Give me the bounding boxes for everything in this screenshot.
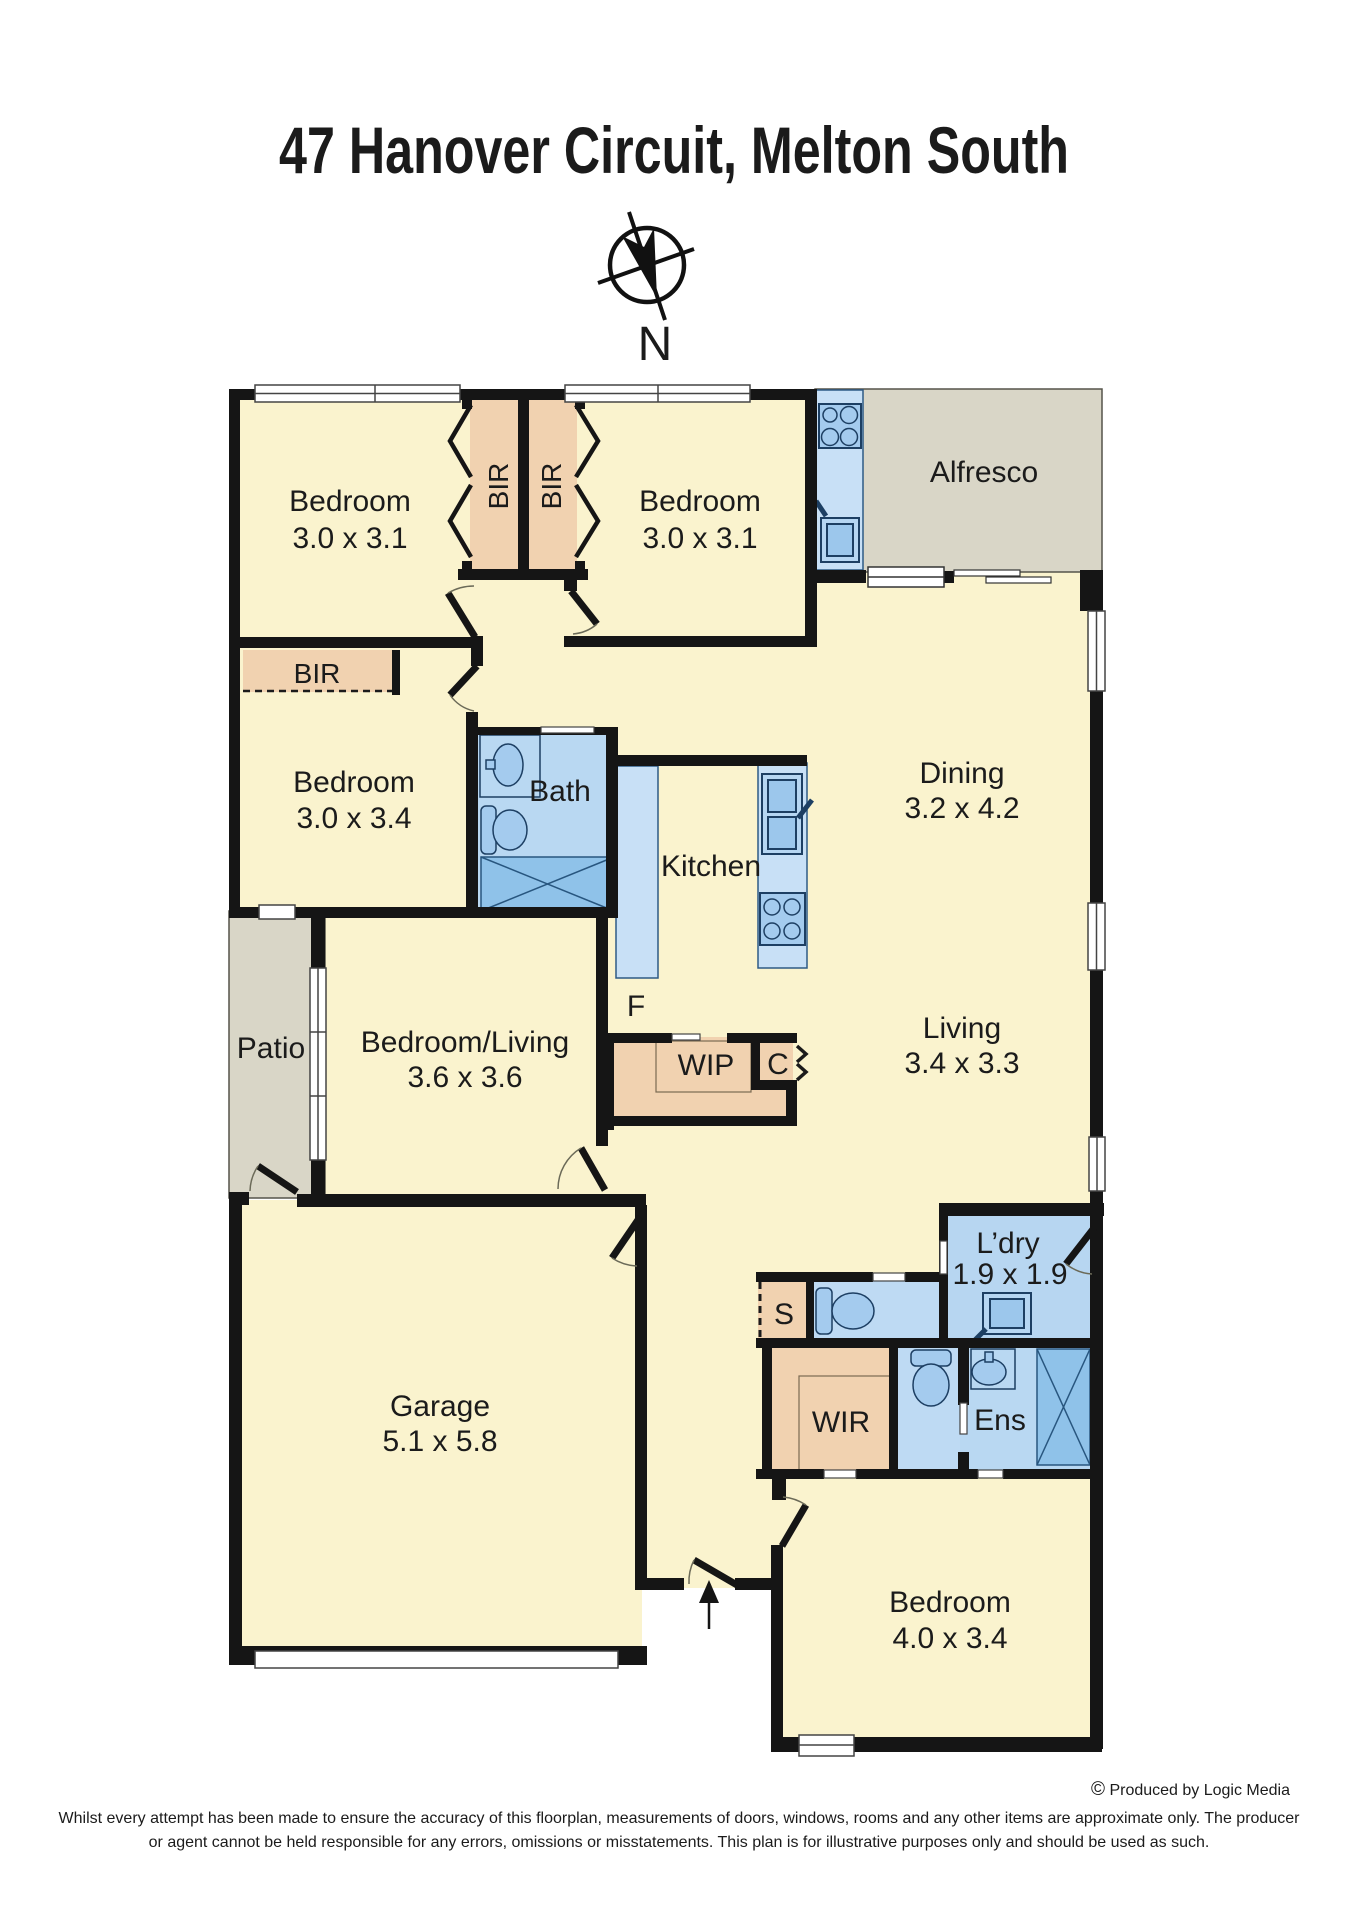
svg-text:47 Hanover Circuit, Melton Sou: 47 Hanover Circuit, Melton South — [279, 113, 1069, 187]
svg-text:Kitchen: Kitchen — [661, 850, 761, 883]
svg-text:Bedroom: Bedroom — [289, 485, 411, 518]
svg-text:1.9 x 1.9: 1.9 x 1.9 — [952, 1258, 1067, 1291]
svg-text:BIR: BIR — [536, 463, 567, 510]
svg-text:N: N — [638, 318, 673, 371]
svg-text:BIR: BIR — [483, 463, 514, 510]
svg-text:Bedroom: Bedroom — [889, 1586, 1011, 1619]
svg-text:WIP: WIP — [678, 1049, 735, 1082]
svg-text:Garage: Garage — [390, 1390, 490, 1423]
svg-text:3.4 x 3.3: 3.4 x 3.3 — [904, 1047, 1019, 1080]
svg-text:Alfresco: Alfresco — [930, 456, 1038, 489]
svg-text:3.0 x 3.1: 3.0 x 3.1 — [642, 522, 757, 555]
svg-text:F: F — [627, 990, 645, 1023]
svg-text:© Produced by Logic Media: © Produced by Logic Media — [1091, 1779, 1290, 1800]
svg-text:4.0 x 3.4: 4.0 x 3.4 — [892, 1622, 1007, 1655]
svg-text:Dining: Dining — [919, 757, 1004, 790]
svg-text:S: S — [774, 1298, 794, 1331]
svg-text:or agent cannot be held respon: or agent cannot be held responsible for … — [149, 1834, 1210, 1851]
svg-text:WIR: WIR — [812, 1406, 870, 1439]
svg-text:Patio: Patio — [237, 1032, 305, 1065]
svg-text:3.0 x 3.4: 3.0 x 3.4 — [296, 802, 411, 835]
svg-text:Bedroom: Bedroom — [293, 766, 415, 799]
svg-text:Bath: Bath — [529, 775, 591, 808]
svg-text:Bedroom: Bedroom — [639, 485, 761, 518]
svg-text:3.6 x 3.6: 3.6 x 3.6 — [407, 1061, 522, 1094]
svg-text:BIR: BIR — [294, 658, 341, 689]
svg-text:Ens: Ens — [974, 1404, 1026, 1437]
svg-text:L’dry: L’dry — [976, 1227, 1039, 1260]
svg-text:Living: Living — [923, 1012, 1001, 1045]
svg-text:Bedroom/Living: Bedroom/Living — [361, 1026, 569, 1059]
svg-text:C: C — [767, 1048, 789, 1081]
svg-text:5.1 x 5.8: 5.1 x 5.8 — [382, 1425, 497, 1458]
svg-text:3.2 x 4.2: 3.2 x 4.2 — [904, 792, 1019, 825]
svg-text:Whilst every attempt has been: Whilst every attempt has been made to en… — [59, 1810, 1301, 1827]
svg-text:3.0 x 3.1: 3.0 x 3.1 — [292, 522, 407, 555]
